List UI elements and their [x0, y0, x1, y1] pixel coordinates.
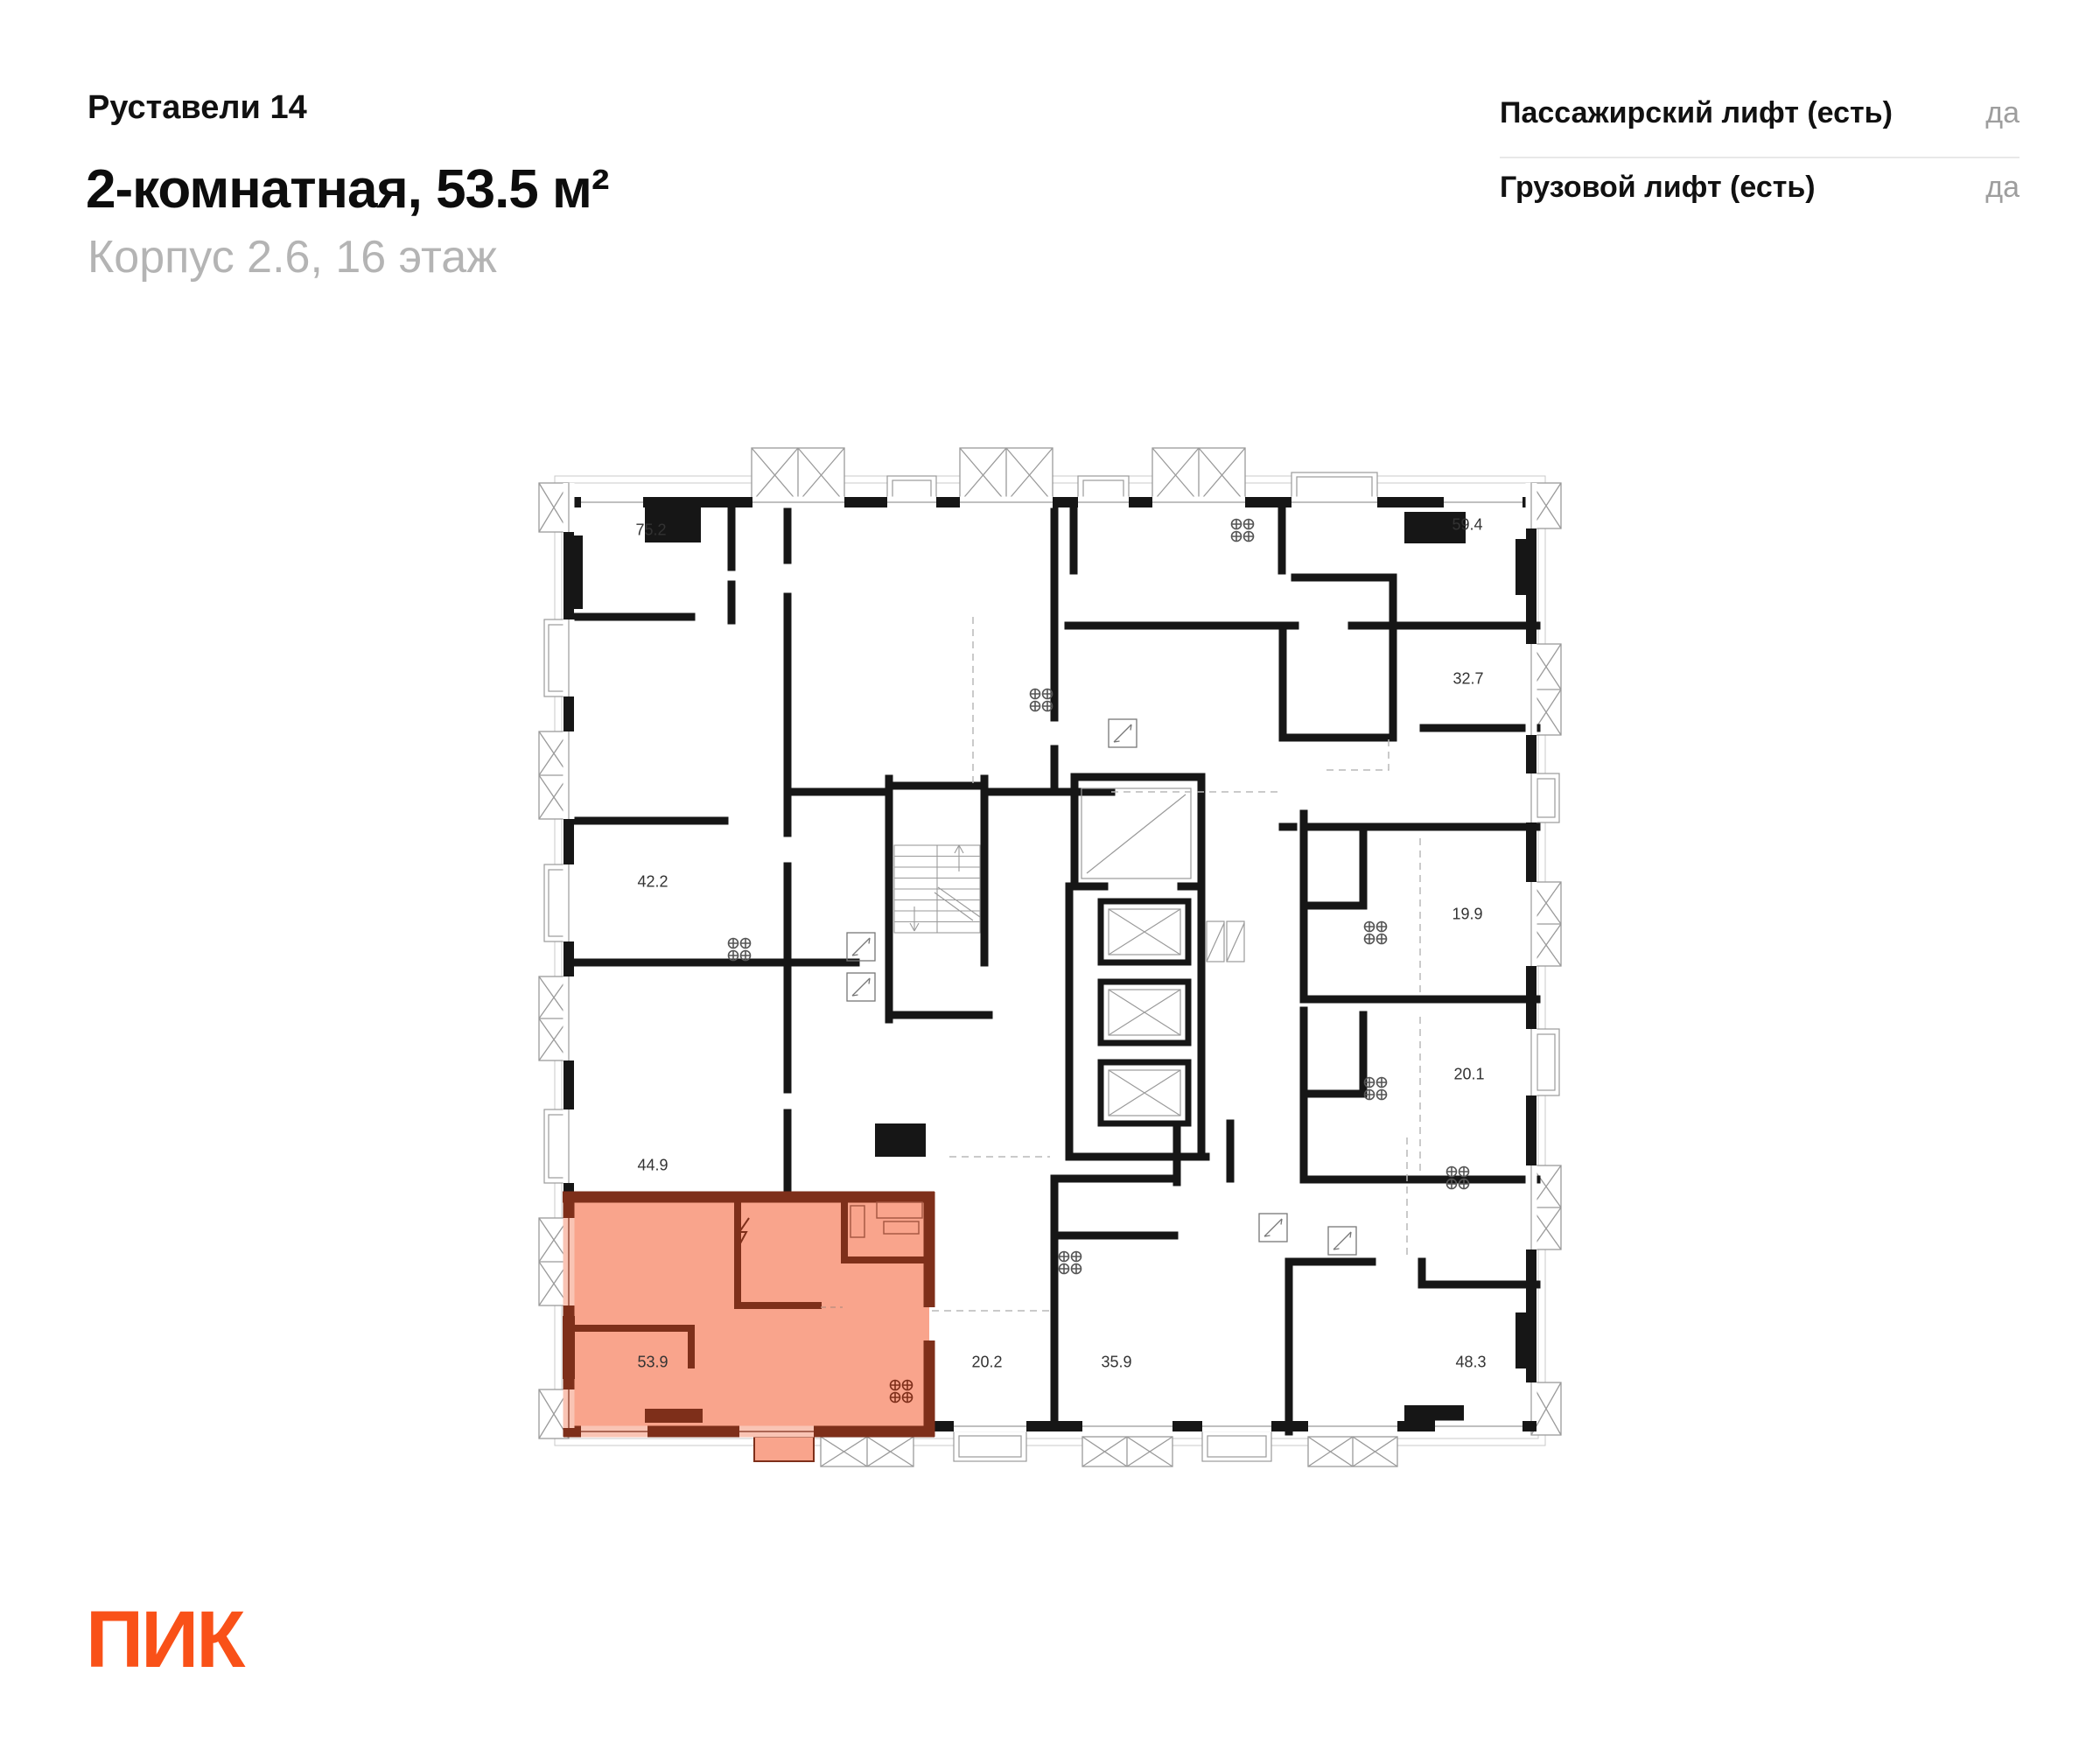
cargo-lift-label: Грузовой лифт (есть) [1500, 171, 1816, 205]
lift-row-passenger: Пассажирский лифт (есть) да [1500, 84, 2019, 157]
cargo-lift-value: да [1985, 171, 2019, 205]
project-name: Руставели 14 [87, 91, 307, 124]
passenger-lift-value: да [1985, 96, 2019, 130]
page-title: 2-комнатная, 53.5 м² [86, 163, 609, 217]
pik-logo[interactable]: ПИК [86, 1599, 242, 1680]
apartment-plan-page: Руставели 14 2-комнатная, 53.5 м² Корпус… [0, 0, 2100, 1750]
lift-row-cargo: Грузовой лифт (есть) да [1500, 158, 2019, 231]
floor-plan [525, 429, 1575, 1479]
passenger-lift-label: Пассажирский лифт (есть) [1500, 96, 1893, 130]
building-floor-subtitle: Корпус 2.6, 16 этаж [87, 234, 497, 280]
lift-info-panel: Пассажирский лифт (есть) да Грузовой лиф… [1500, 84, 2019, 231]
stairs [894, 845, 980, 933]
elevator-shafts [1081, 788, 1244, 1123]
